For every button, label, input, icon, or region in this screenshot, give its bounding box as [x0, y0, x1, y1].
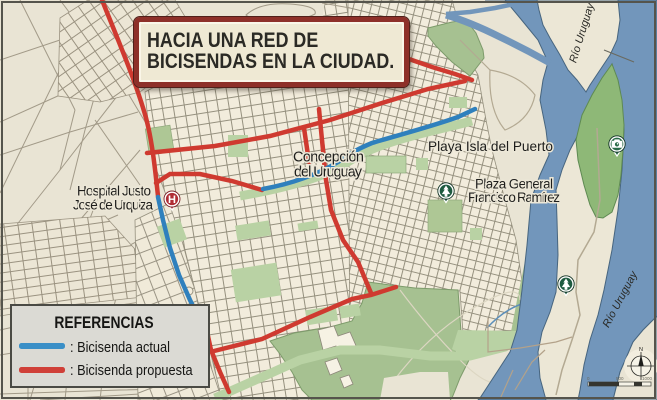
svg-text:N: N: [639, 347, 643, 353]
svg-text:500: 500: [616, 376, 624, 381]
svg-text:del Uruguay: del Uruguay: [294, 165, 363, 181]
svg-text:Hospital Justo: Hospital Justo: [77, 184, 151, 199]
svg-text:José de Urquiza: José de Urquiza: [73, 198, 153, 213]
svg-text:H: H: [168, 194, 176, 206]
svg-text:1000: 1000: [642, 376, 653, 381]
svg-text:Francisco Ramírez: Francisco Ramírez: [468, 190, 560, 205]
svg-text:Concepción: Concepción: [293, 150, 364, 166]
svg-text:Playa Isla del Puerto: Playa Isla del Puerto: [428, 138, 553, 154]
